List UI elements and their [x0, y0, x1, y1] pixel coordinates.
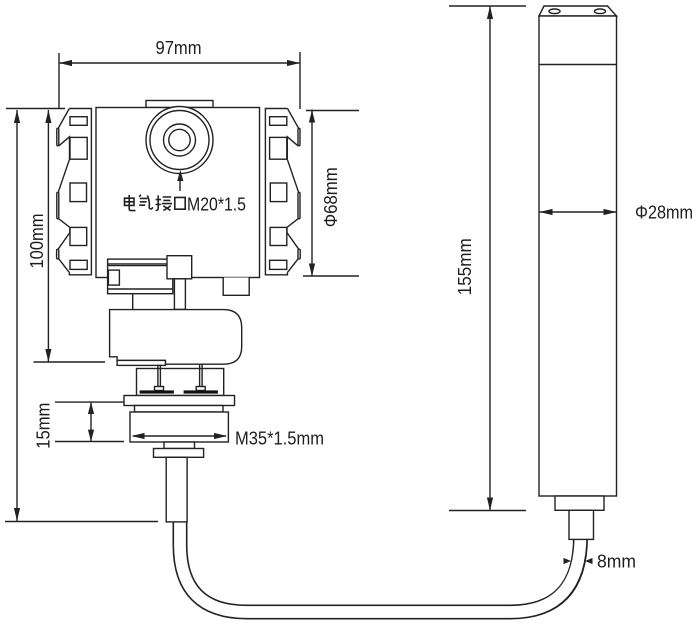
svg-text:155mm: 155mm — [455, 238, 475, 295]
svg-text:M35*1.5mm: M35*1.5mm — [235, 429, 324, 449]
svg-text:M20*1.5: M20*1.5 — [187, 195, 246, 215]
svg-text:8mm: 8mm — [597, 552, 636, 572]
svg-text:Φ68mm: Φ68mm — [321, 167, 341, 227]
svg-text:15mm: 15mm — [34, 403, 54, 449]
svg-text:100mm: 100mm — [27, 214, 47, 269]
svg-text:97mm: 97mm — [156, 38, 202, 58]
svg-text:Φ28mm: Φ28mm — [635, 203, 693, 223]
